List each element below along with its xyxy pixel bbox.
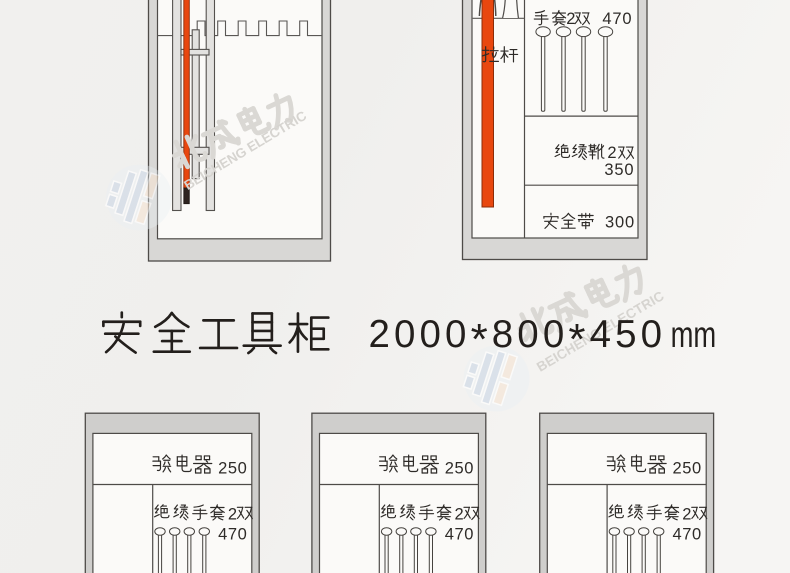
- svg-text:250: 250: [218, 460, 247, 478]
- svg-text:2: 2: [455, 505, 464, 523]
- svg-text:2: 2: [607, 144, 616, 162]
- svg-text:2: 2: [682, 505, 691, 523]
- svg-text:250: 250: [673, 460, 702, 478]
- svg-text:2: 2: [566, 10, 575, 28]
- svg-text:300: 300: [605, 213, 635, 231]
- svg-text:470: 470: [218, 526, 247, 544]
- svg-text:2: 2: [228, 505, 237, 523]
- svg-text:470: 470: [602, 10, 632, 28]
- svg-text:mm: mm: [671, 314, 717, 355]
- svg-text:470: 470: [445, 526, 474, 544]
- svg-text:470: 470: [673, 526, 702, 544]
- svg-text:350: 350: [604, 161, 634, 179]
- svg-text:250: 250: [445, 460, 474, 478]
